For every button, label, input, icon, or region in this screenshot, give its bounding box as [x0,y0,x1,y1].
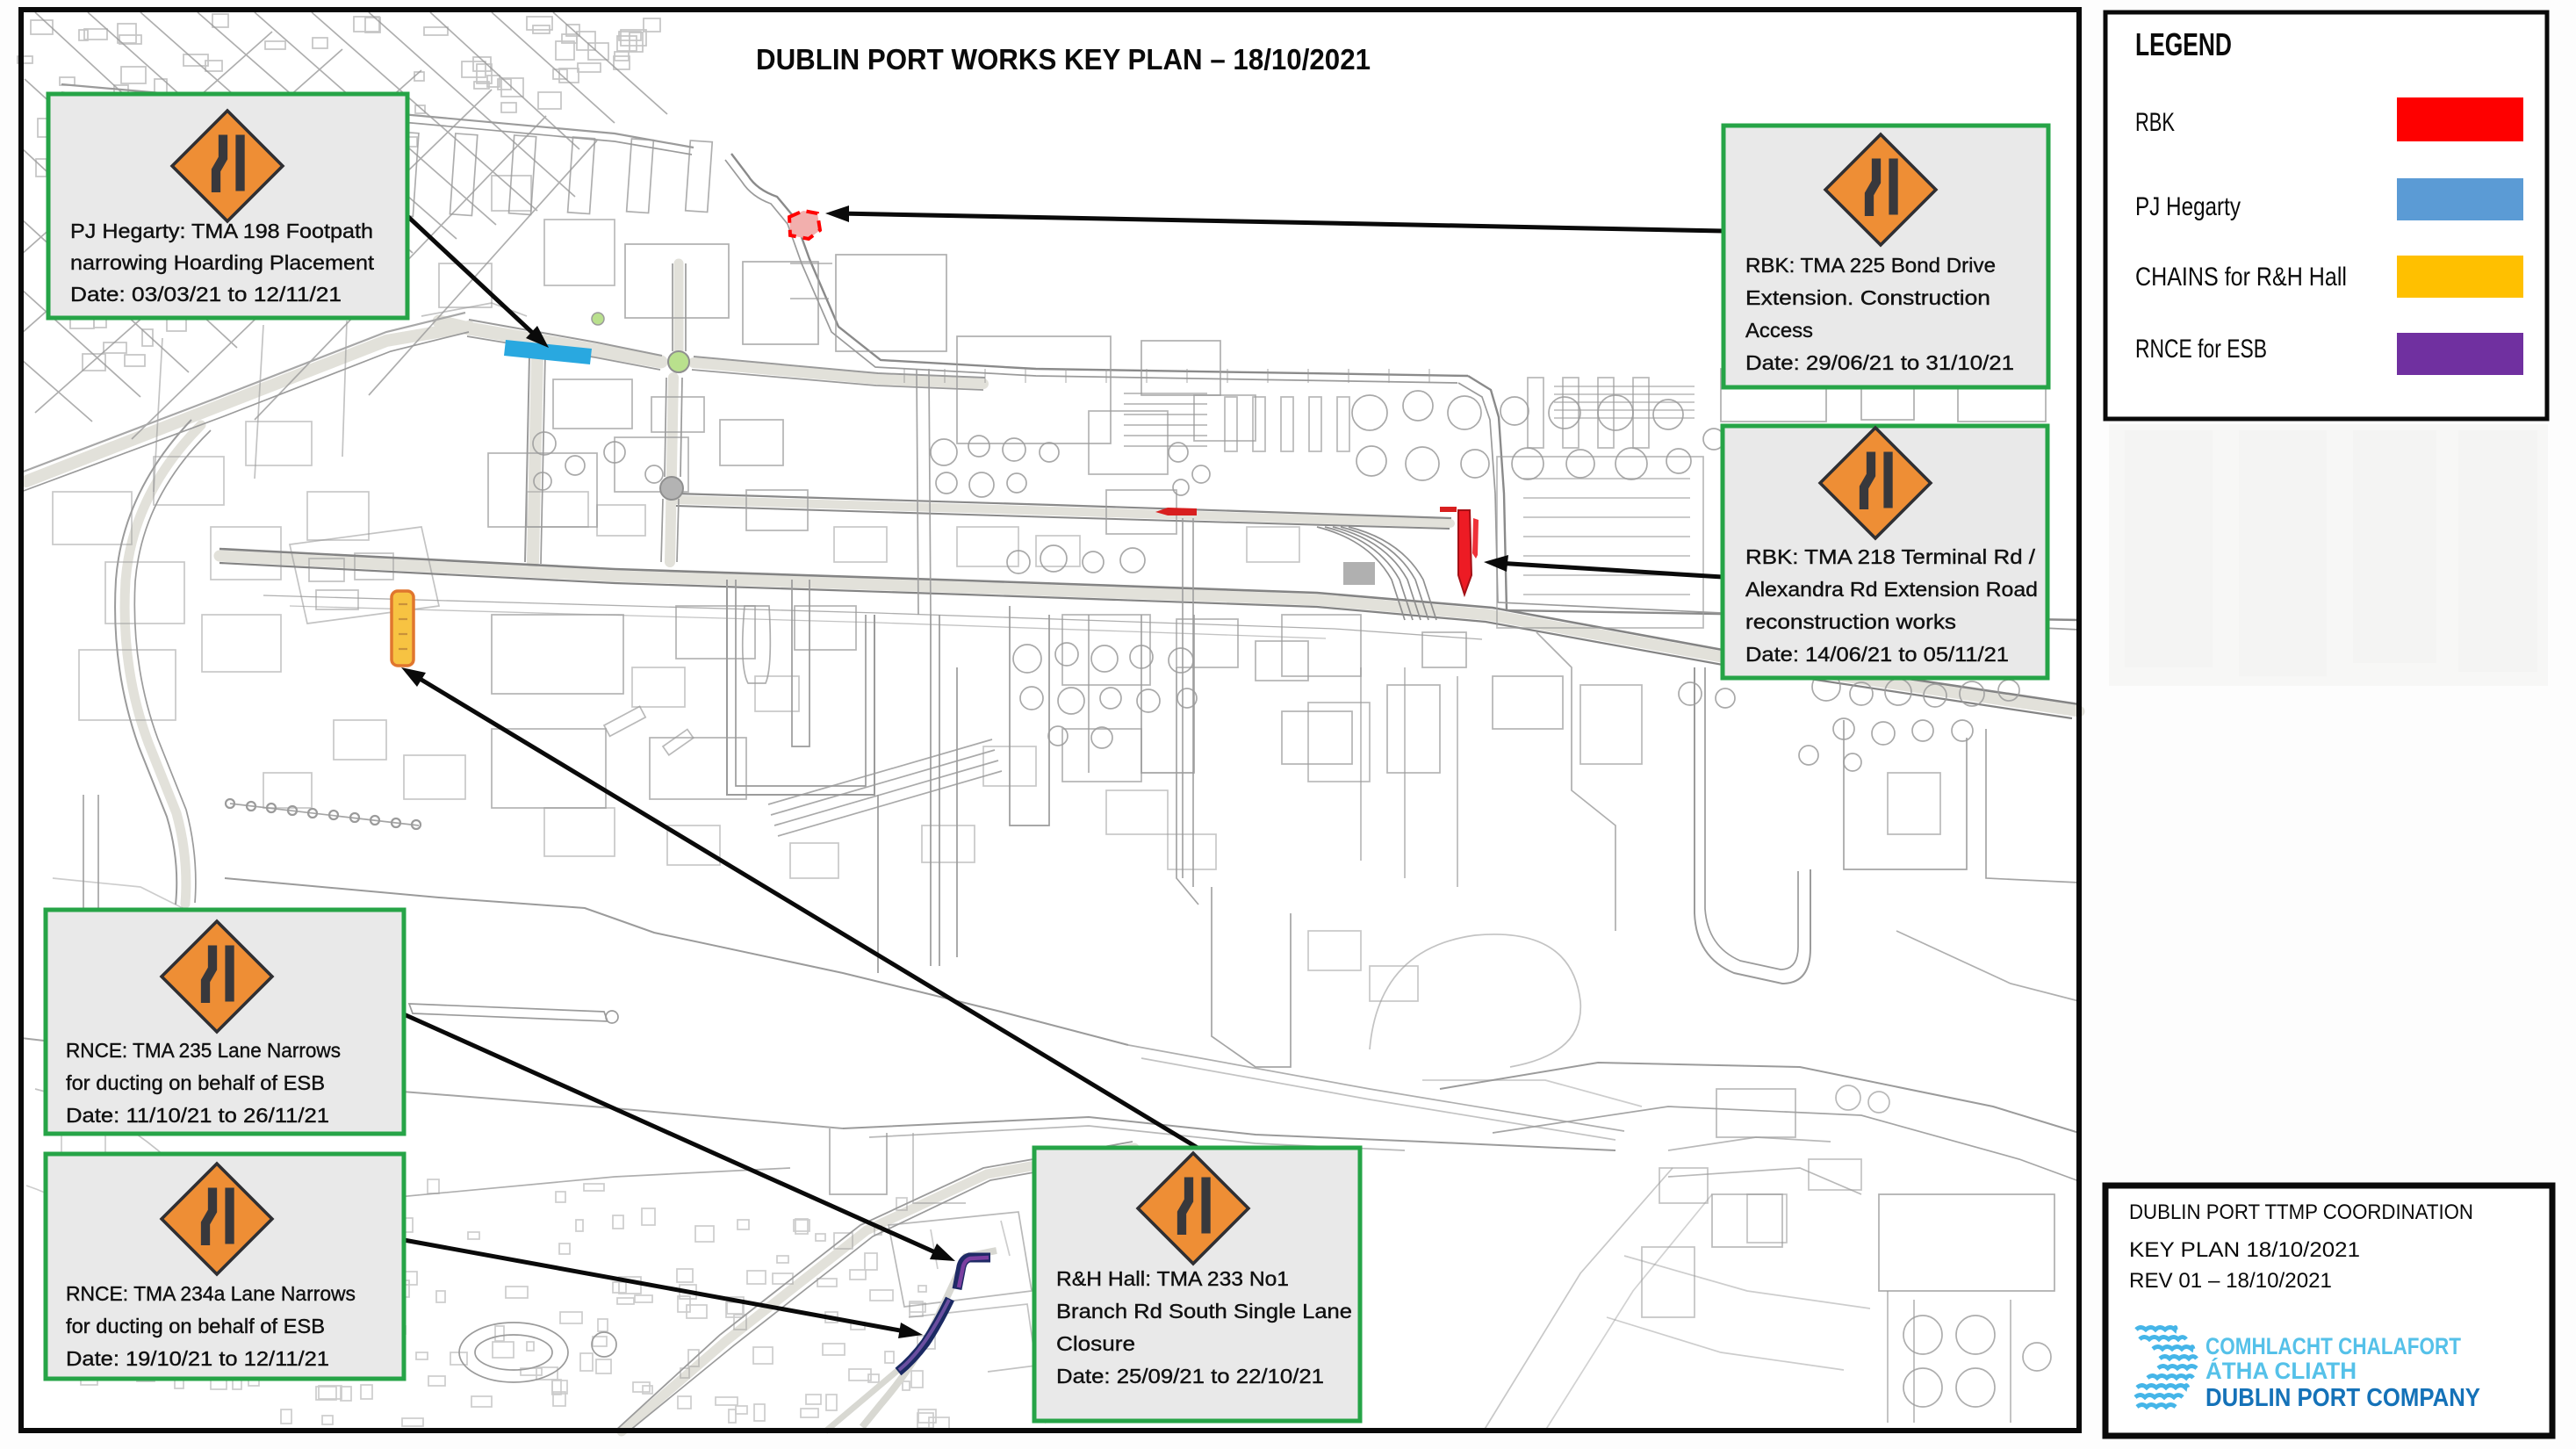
svg-text:Branch Rd South Single Lane: Branch Rd South Single Lane [1056,1300,1352,1323]
svg-text:Date: 19/10/21 to 12/11/21: Date: 19/10/21 to 12/11/21 [66,1347,329,1370]
svg-text:Date: 11/10/21 to 26/11/21: Date: 11/10/21 to 26/11/21 [66,1104,329,1127]
svg-text:PJ Hegarty: PJ Hegarty [2135,192,2241,221]
svg-text:Closure: Closure [1056,1332,1135,1355]
svg-text:DUBLIN PORT TTMP COORDINATION: DUBLIN PORT TTMP COORDINATION [2129,1200,2473,1224]
svg-text:Extension. Construction: Extension. Construction [1745,286,1990,309]
svg-text:Access: Access [1745,319,1813,342]
svg-text:Date: 03/03/21 to 12/11/21: Date: 03/03/21 to 12/11/21 [70,283,342,306]
svg-text:RNCE: TMA 235 Lane Narrows: RNCE: TMA 235 Lane Narrows [66,1039,341,1062]
svg-text:REV 01 – 18/10/2021: REV 01 – 18/10/2021 [2129,1269,2332,1293]
svg-text:CHAINS for R&H Hall: CHAINS for R&H Hall [2135,263,2347,292]
svg-text:Alexandra Rd Extension Road: Alexandra Rd Extension Road [1745,578,2038,601]
svg-text:Date: 25/09/21 to 22/10/21: Date: 25/09/21 to 22/10/21 [1056,1365,1324,1388]
svg-text:for ducting on behalf of ESB: for ducting on behalf of ESB [66,1315,325,1337]
svg-text:PJ Hegarty: TMA 198 Footpath: PJ Hegarty: TMA 198 Footpath [70,220,373,242]
svg-text:narrowing Hoarding Placement: narrowing Hoarding Placement [70,251,375,274]
svg-text:COMHLACHT CHALAFORT: COMHLACHT CHALAFORT [2205,1333,2461,1359]
svg-text:Date: 29/06/21 to 31/10/21: Date: 29/06/21 to 31/10/21 [1745,351,2014,374]
svg-text:DUBLIN PORT WORKS KEY PLAN – 1: DUBLIN PORT WORKS KEY PLAN – 18/10/2021 [756,43,1371,76]
svg-text:ÁTHA CLIATH: ÁTHA CLIATH [2205,1357,2357,1384]
svg-text:Date: 14/06/21 to 05/11/21: Date: 14/06/21 to 05/11/21 [1745,643,2009,666]
svg-text:RBK: TMA 225 Bond Drive: RBK: TMA 225 Bond Drive [1745,254,1996,277]
svg-text:RBK: RBK [2135,108,2175,137]
svg-text:LEGEND: LEGEND [2135,26,2232,62]
svg-text:RNCE for ESB: RNCE for ESB [2135,335,2267,364]
svg-text:KEY PLAN 18/10/2021: KEY PLAN 18/10/2021 [2129,1238,2360,1262]
svg-text:R&H Hall: TMA 233 No1: R&H Hall: TMA 233 No1 [1056,1267,1289,1290]
svg-text:DUBLIN PORT COMPANY: DUBLIN PORT COMPANY [2205,1384,2480,1412]
svg-text:RBK: TMA 218 Terminal Rd /: RBK: TMA 218 Terminal Rd / [1745,545,2036,568]
svg-text:for ducting on behalf of ESB: for ducting on behalf of ESB [66,1071,325,1094]
svg-text:RNCE: TMA 234a Lane Narrows: RNCE: TMA 234a Lane Narrows [66,1282,356,1305]
svg-text:reconstruction works: reconstruction works [1745,610,1956,633]
